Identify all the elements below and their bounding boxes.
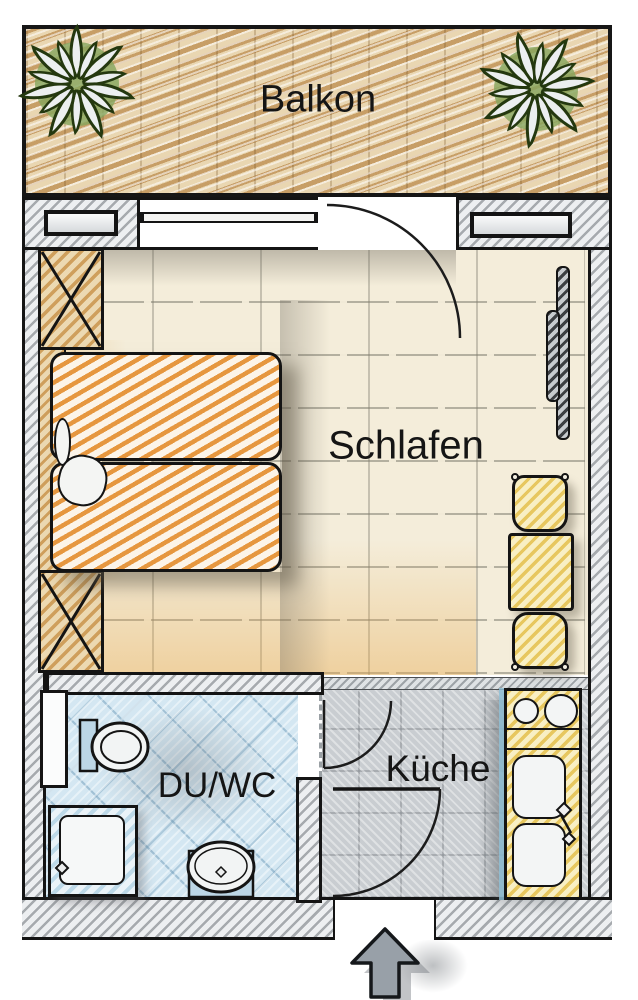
kitchen-label: Küche: [386, 748, 491, 790]
crossed-box-icon: [41, 251, 101, 347]
mattress: [50, 352, 282, 461]
nightstand: [38, 248, 104, 350]
bathroom-wall: [46, 672, 324, 695]
balcony-door-opening: [318, 197, 456, 250]
entrance-opening: [333, 900, 436, 940]
crossed-box-icon: [41, 573, 101, 670]
wall-niche: [470, 212, 572, 238]
shadow: [398, 938, 468, 993]
kitchen-sink-basin: [512, 823, 566, 887]
window-glass-line: [140, 212, 318, 223]
stove-burner: [513, 698, 539, 724]
hall-wall: [296, 777, 322, 903]
chair-knob: [511, 663, 519, 671]
chair-knob: [561, 663, 569, 671]
wall-duct: [40, 690, 68, 788]
shower-tray: [59, 815, 125, 885]
stove-burner: [544, 694, 578, 728]
shower: [48, 805, 138, 897]
outer-wall-bottom: [22, 897, 612, 940]
kitchen-counter: [504, 688, 582, 900]
balcony-label: Balkon: [260, 79, 376, 122]
outer-wall-right: [588, 250, 612, 940]
chair: [512, 612, 568, 669]
chair-knob: [561, 473, 569, 481]
bathroom-label: DU/WC: [158, 766, 277, 806]
wall-niche: [44, 210, 118, 236]
counter-divider: [507, 728, 579, 750]
kitchen-sink-basin: [512, 755, 566, 819]
bathroom-door-opening: [298, 695, 322, 777]
floor-plan: Balkon Schlafen DU/WC Küche: [0, 0, 638, 1000]
chair-knob: [511, 473, 519, 481]
bedroom-window: [140, 197, 318, 250]
bedroom-label: Schlafen: [328, 424, 484, 469]
chair: [512, 475, 568, 532]
nightstand: [38, 570, 104, 673]
radiator: [546, 310, 560, 402]
dining-table: [508, 533, 574, 611]
